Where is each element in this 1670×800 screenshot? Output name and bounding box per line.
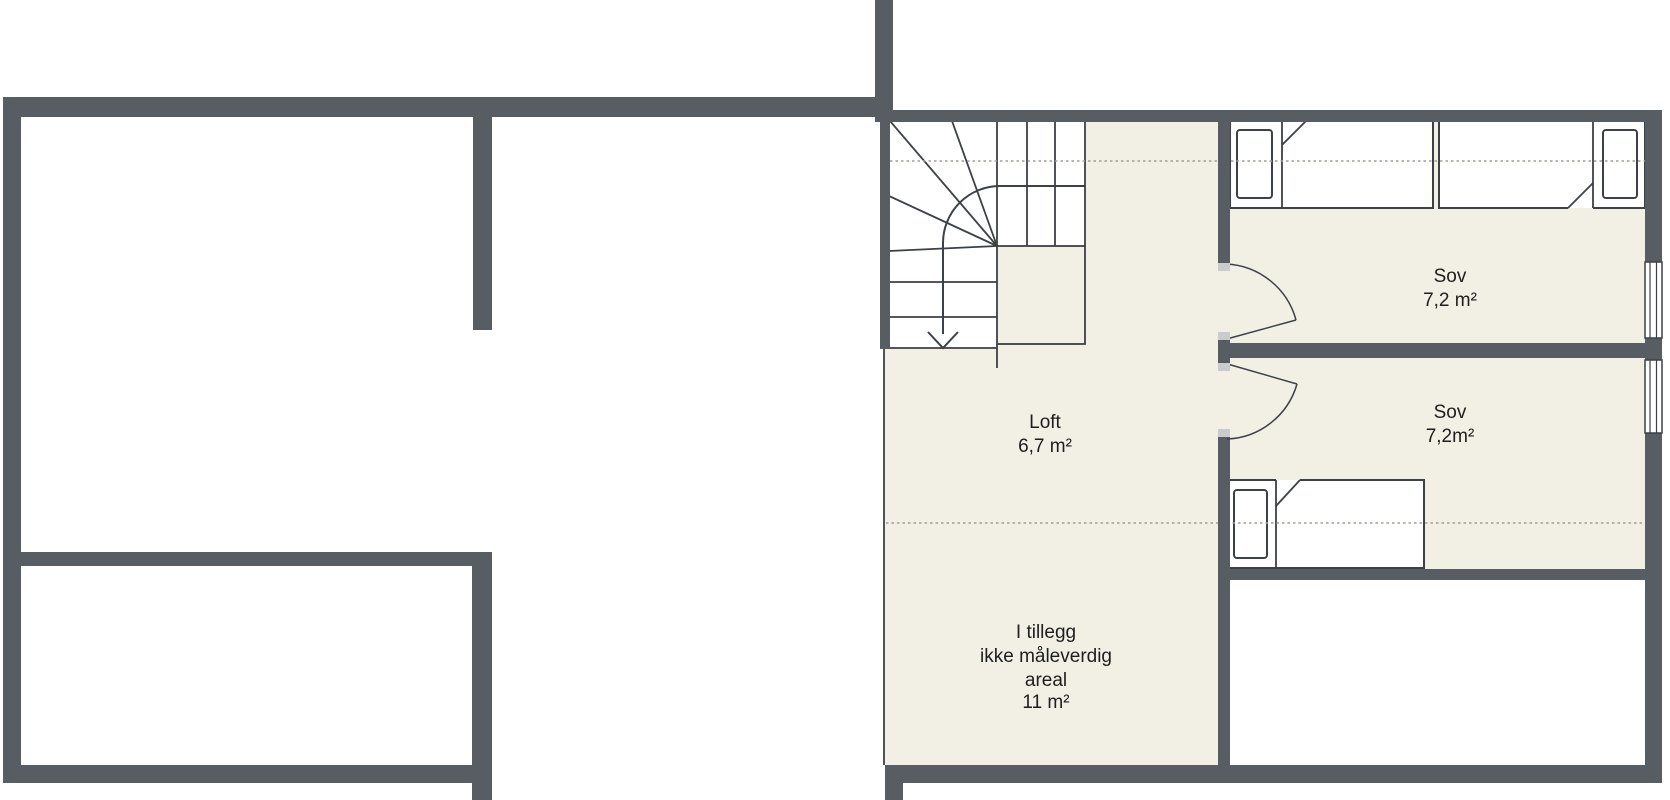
top-right-wall — [875, 110, 1662, 122]
bedroom2-area: 7,2m² — [1426, 426, 1475, 447]
additional-area-line4: 11 m² — [1022, 692, 1069, 713]
window-bedroom1 — [1645, 262, 1662, 338]
window-bedroom2 — [1645, 360, 1662, 433]
stair-side-wall — [880, 117, 890, 349]
pillow — [1603, 130, 1637, 198]
loft-label: Loft — [1029, 412, 1061, 433]
right-outer-wall-lower — [1645, 433, 1662, 783]
bed-bedroom2 — [1226, 480, 1424, 568]
pillow — [1234, 490, 1267, 558]
bedroom1-label: Sov — [1434, 266, 1467, 287]
floor-plan: Loft 6,7 m² Sov 7,2 m² Sov 7,2m² I tille… — [0, 0, 1670, 800]
bottom-stub-wall — [885, 765, 903, 800]
lower-left-room-top-wall — [3, 552, 492, 566]
bedroom2-label: Sov — [1434, 402, 1467, 423]
right-outer-wall-upper — [1645, 110, 1662, 262]
staircase — [889, 121, 1085, 368]
bed-bedroom1-right — [1439, 121, 1645, 208]
top-center-wall — [875, 0, 893, 117]
bed-bedroom1-left — [1230, 120, 1433, 208]
pillow — [1237, 130, 1272, 198]
additional-area-line3: areal — [1025, 670, 1067, 691]
lower-left-room-bottom-wall — [3, 765, 472, 783]
bedroom1-area: 7,2 m² — [1423, 290, 1477, 311]
bedroom2-lower-wall — [1218, 569, 1662, 580]
upper-left-interior-wall — [473, 117, 492, 330]
left-outer-wall — [3, 97, 21, 783]
additional-area-line2: ikke måleverdig — [980, 646, 1112, 667]
top-left-wall — [3, 97, 893, 117]
divider-wall-upper — [1218, 121, 1230, 263]
lower-left-room-right-wall — [472, 552, 492, 800]
bedroom-partition-wall — [1218, 343, 1662, 358]
floor-plan-drawing: Loft 6,7 m² Sov 7,2 m² Sov 7,2m² I tille… — [0, 0, 1670, 800]
divider-wall-lower — [1218, 437, 1230, 783]
additional-area-line1: I tillegg — [1016, 622, 1076, 643]
stair-landing-floor — [997, 246, 1085, 344]
loft-area: 6,7 m² — [1018, 436, 1072, 457]
bottom-wall — [885, 765, 1662, 783]
unmeasured-void — [1230, 580, 1645, 765]
